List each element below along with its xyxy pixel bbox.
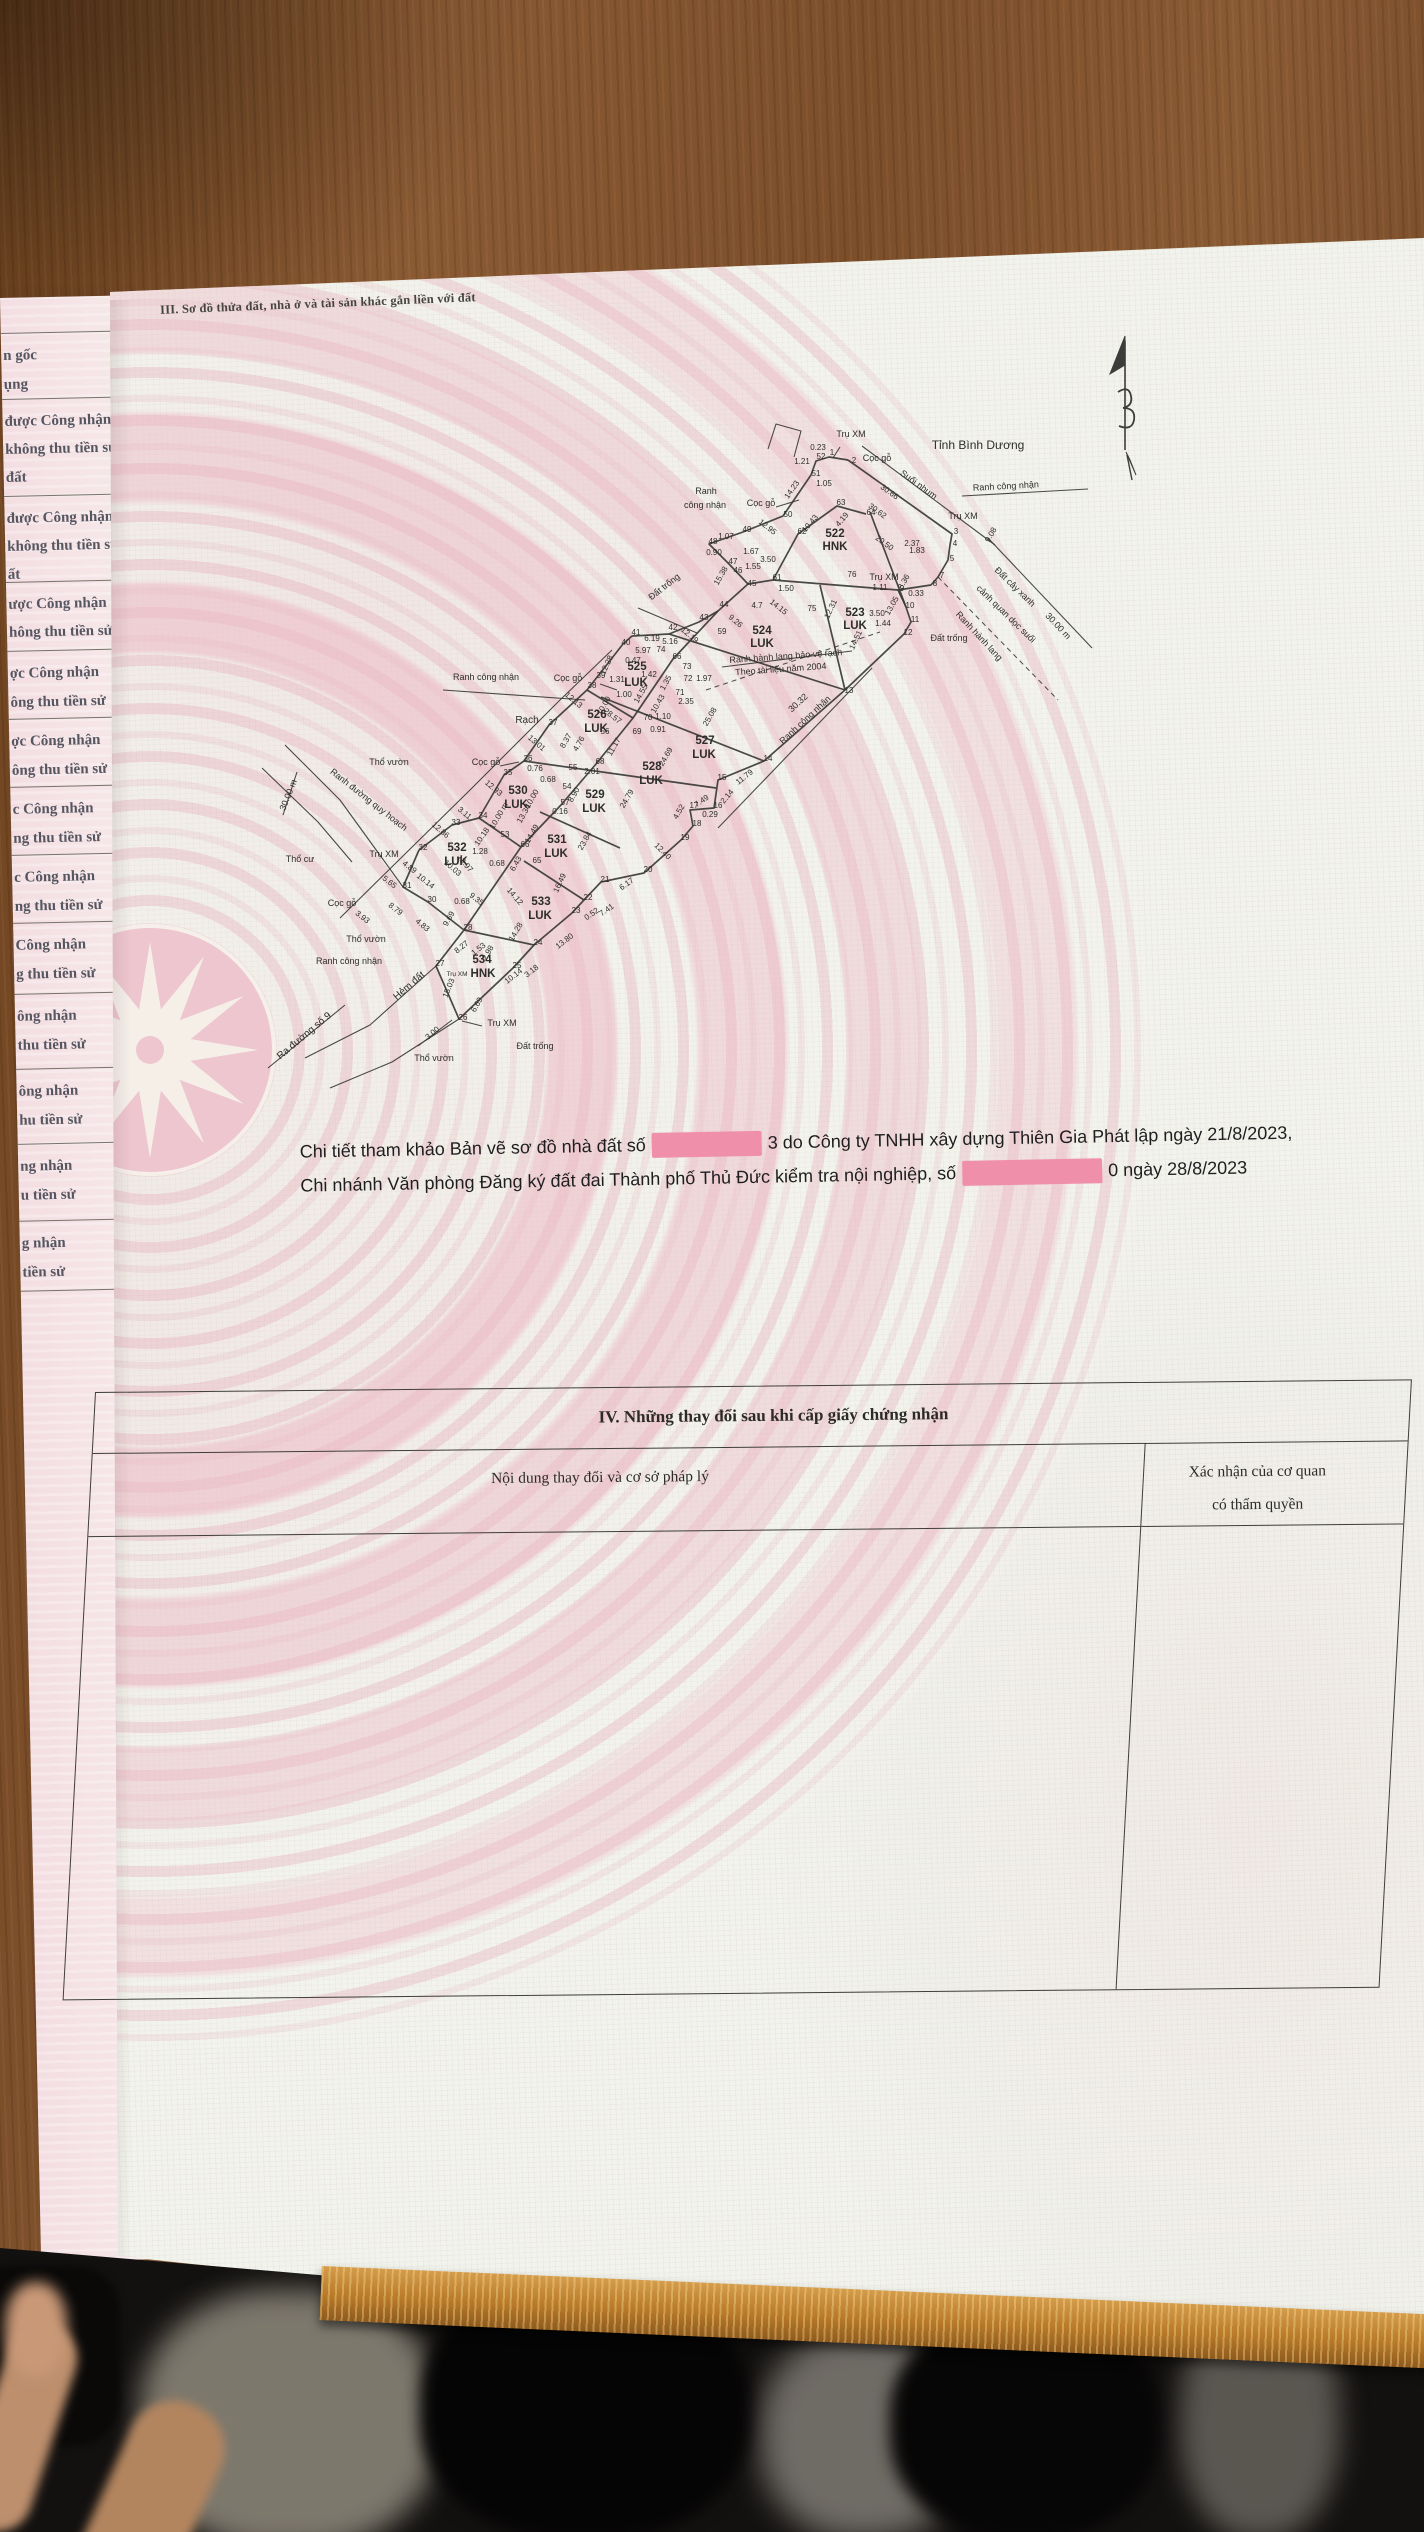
diagram-label: 1.07: [718, 532, 734, 541]
table-column-divider: [1116, 1443, 1146, 1989]
diagram-label: 2: [852, 456, 857, 465]
diagram-label: Cọc gỗ: [554, 673, 583, 683]
diagram-label: 14.28: [507, 920, 525, 942]
diagram-label: Thổ vườn: [414, 1053, 453, 1063]
diagram-label: Cọc gỗ: [747, 498, 776, 508]
cadastral-diagram: Tỉnh Bình DươngTrụ XMCọc gỗSuối nhumRanh…: [0, 0, 1424, 1300]
diagram-label: 0.33: [908, 589, 924, 598]
diagram-label: 56: [601, 727, 610, 736]
diagram-label: 1.31: [609, 675, 625, 684]
diagram-label: 12.86: [430, 820, 452, 840]
finger: [5, 2282, 67, 2377]
diagram-label: 7: [940, 571, 945, 580]
diagram-label: 48: [709, 537, 718, 546]
diagram-label: Trụ XM: [369, 849, 398, 859]
diagram-label: 1.67: [743, 547, 759, 556]
diagram-label: 3.93: [354, 909, 372, 926]
diagram-label: 0.29: [702, 810, 718, 819]
diagram-label: 19: [681, 833, 690, 842]
diagram-label: Cọc gỗ: [472, 757, 501, 767]
diagram-label: 65: [533, 856, 542, 865]
diagram-label: 5: [950, 554, 955, 563]
diagram-label: 3.18: [523, 962, 541, 979]
diagram-line: [464, 930, 534, 945]
table-line-header-sep: [88, 1523, 1403, 1537]
diagram-line: [768, 424, 801, 457]
diagram-label: 6.43: [508, 854, 524, 872]
diagram-label: 49: [743, 525, 752, 534]
diagram-label: 22: [584, 893, 593, 902]
diagram-label: 0.91: [650, 725, 666, 734]
diagram-label: 7.41: [598, 901, 616, 918]
diagram-label: Ranh công nhận: [316, 956, 382, 966]
diagram-label: Trụ XM: [446, 971, 467, 978]
diagram-label: 18: [693, 819, 702, 828]
diagram-label: 3.50: [760, 555, 776, 564]
diagram-label: 1: [830, 448, 835, 457]
diagram-label: 8.79: [387, 901, 405, 918]
diagram-label: 9.69: [441, 909, 457, 927]
diagram-label: LUK: [692, 749, 716, 761]
diagram-label: Cọc gỗ: [863, 453, 892, 463]
diagram-line: [988, 538, 1092, 648]
diagram-label: 53: [501, 830, 510, 839]
diagram-label: 20: [644, 865, 653, 874]
diagram-label: 12.13: [563, 690, 585, 710]
diagram-label: 9.35: [468, 891, 486, 908]
diagram-label: 0.68: [454, 897, 470, 906]
diagram-label: 70: [644, 713, 653, 722]
diagram-label: 0.16: [552, 807, 568, 816]
diagram-label: 524: [752, 625, 772, 637]
section4-col1-header: Nội dung thay đổi và cơ sở pháp lý: [300, 1460, 900, 1496]
diagram-label: 55: [569, 763, 578, 772]
diagram-label: 66: [521, 840, 530, 849]
north-arrow-icon: [1110, 336, 1136, 480]
diagram-label: 527: [695, 735, 714, 747]
diagram-label: 38: [588, 681, 597, 690]
diagram-label: Hẻm đất: [391, 969, 428, 1003]
diagram-label: 14: [764, 754, 773, 763]
diagram-label: 0.23: [810, 443, 826, 452]
diagram-label: 0.68: [540, 775, 556, 784]
diagram-label: 4: [953, 539, 958, 548]
diagram-label: 73: [683, 662, 692, 671]
diagram-label: 26: [459, 1013, 468, 1022]
diagram-label: Trụ XM: [869, 572, 898, 582]
diagram-label: 12.95: [757, 517, 779, 537]
diagram-label: 1.44: [875, 619, 891, 628]
diagram-label: Thổ cư: [286, 854, 315, 864]
diagram-label: 10: [906, 601, 915, 610]
diagram-label: 0.76: [527, 764, 543, 773]
diagram-line: [524, 861, 584, 900]
diagram-label: LUK: [582, 803, 606, 815]
diagram-label: 59: [718, 627, 727, 636]
diagram-label: 12.31: [822, 597, 839, 619]
diagram-label: 531: [547, 834, 567, 846]
diagram-label: 523: [845, 607, 864, 619]
diagram-label: 2.35: [678, 697, 694, 706]
diagram-label: 11.79: [734, 767, 755, 786]
diagram-label: 14.15: [768, 597, 790, 617]
section4-col2-header: Xác nhận của cơ quan có thẩm quyền: [1150, 1454, 1366, 1522]
diagram-label: 7.49: [693, 792, 711, 809]
diagram-label: 6.69: [469, 995, 485, 1013]
diagram-label: 39: [597, 671, 606, 680]
diagram-label: 21: [601, 875, 610, 884]
diagram-label: 522: [825, 528, 844, 540]
diagram-label: 36: [524, 754, 533, 763]
diagram-label: 13.80: [554, 931, 576, 951]
diagram-line: [776, 500, 799, 507]
diagram-label: 25.08: [701, 705, 719, 727]
diagram-label: LUK: [639, 775, 663, 787]
diagram-label: 1.97: [696, 674, 712, 683]
diagram-line: [600, 684, 617, 690]
diagram-label: 42: [669, 623, 678, 632]
table-line-title-sep: [93, 1440, 1408, 1454]
diagram-label: 15.03: [441, 977, 457, 999]
diagram-label: Cọc gỗ: [328, 898, 357, 908]
diagram-label: 64: [867, 508, 876, 517]
diagram-label: 12.40: [653, 841, 674, 862]
diagram-label: 51: [812, 469, 821, 478]
diagram-label: 32: [419, 843, 428, 852]
diagram-label: Trụ XM: [836, 429, 865, 439]
diagram-label: Đất trống: [930, 633, 967, 643]
diagram-label: 62: [798, 527, 807, 536]
diagram-label: 46: [734, 566, 743, 575]
diagram-label: 34: [479, 811, 488, 820]
diagram-label: 76: [848, 570, 857, 579]
diagram-label: 71: [676, 688, 685, 697]
diagram-label: 8: [933, 579, 938, 588]
diagram-label: Tỉnh Bình Dương: [932, 438, 1025, 452]
diagram-label: 75: [808, 604, 817, 613]
diagram-label: công nhận: [684, 500, 726, 510]
diagram-label: 13: [845, 686, 854, 695]
diagram-label: 14.23: [783, 478, 802, 500]
col2-header-line1: Xác nhận của cơ quan: [1150, 1454, 1365, 1489]
diagram-label: 1.05: [816, 479, 832, 488]
diagram-label: 1.21: [794, 457, 810, 466]
diagram-label: 4.52: [671, 802, 687, 820]
diagram-line: [601, 697, 764, 761]
diagram-label: 1.11: [873, 583, 889, 592]
diagram-label: 533: [531, 896, 550, 908]
diagram-label: 5.65: [381, 874, 399, 891]
diagram-label: 57: [561, 798, 570, 807]
caption-line2-tail: 0 ngày 28/8/2023: [1108, 1150, 1248, 1187]
diagram-label: 4.76: [571, 734, 587, 752]
diagram-label: 69: [633, 727, 642, 736]
diagram-label: 61: [773, 573, 782, 582]
diagram-label: 30.66: [879, 482, 901, 501]
diagram-label: Trụ XM: [487, 1018, 516, 1028]
diagram-label: HNK: [823, 541, 849, 553]
diagram-label: 532: [447, 842, 466, 854]
diagram-label: 63: [837, 498, 846, 507]
diagram-label: 1.00: [616, 690, 632, 699]
diagram-label: Ranh công nhận: [453, 672, 519, 682]
diagram-label: 43: [700, 613, 709, 622]
diagram-label: 72: [684, 674, 693, 683]
diagram-label: LUK: [750, 638, 774, 650]
photo-scene: n gốcụngđược Công nhậnkhông thu tiền sửđ…: [0, 0, 1424, 2532]
diagram-label: 30.00 m: [1043, 611, 1072, 642]
diagram-label: Ranh đường quy hoạch: [328, 766, 409, 832]
diagram-label: HNK: [471, 968, 497, 980]
diagram-label: 23: [572, 906, 581, 915]
diagram-label: Ra đường số 9: [274, 1009, 334, 1062]
diagram-label: 0.52: [583, 905, 601, 922]
diagram-label: 530: [508, 785, 527, 797]
diagram-label: 12: [904, 628, 913, 637]
diagram-label: 10.18: [473, 825, 492, 847]
diagram-label: 37: [549, 718, 558, 727]
diagram-label: Trụ XM: [948, 511, 977, 521]
diagram-label: 66: [673, 652, 682, 661]
diagram-label: 6.19: [644, 634, 660, 643]
col2-header-line2: có thẩm quyền: [1150, 1487, 1365, 1522]
diagram-label: 16.49: [551, 871, 568, 893]
diagram-label: 11.17: [605, 736, 623, 758]
diagram-label: 4.19: [834, 510, 851, 528]
diagram-label: 50: [784, 510, 793, 519]
diagram-label: 14.12: [505, 886, 525, 908]
diagram-label: 3.00: [424, 1024, 442, 1041]
diagram-label: 30: [428, 895, 437, 904]
diagram-label: 0.47: [625, 656, 641, 665]
diagram-label: 4.7: [751, 601, 763, 610]
diagram-label: 1.10: [655, 712, 671, 721]
diagram-label: LUK: [528, 910, 552, 922]
diagram-label: 5.97: [635, 646, 651, 655]
diagram-label: 2.01: [584, 767, 600, 776]
diagram-label: 30.00 m: [277, 778, 298, 812]
diagram-label: 24.69: [657, 745, 675, 767]
diagram-label: 0.90: [706, 548, 722, 557]
diagram-label: 52: [817, 452, 826, 461]
diagram-label: 28: [464, 923, 473, 932]
diagram-label: 1.28: [472, 847, 488, 856]
diagram-label: 15.38: [712, 564, 730, 586]
diagram-label: Suối nhum: [898, 468, 939, 501]
diagram-label: 9.26: [727, 613, 745, 630]
diagram-label: 1.50: [778, 584, 794, 593]
diagram-label: 24.79: [618, 787, 636, 809]
diagram-label: Đất trống: [646, 571, 681, 602]
diagram-label: Ranh công nhận: [973, 479, 1039, 492]
diagram-label: 74: [657, 645, 666, 654]
diagram-label: 35: [504, 768, 513, 777]
redaction-box-1: [651, 1130, 761, 1157]
diagram-label: 33: [452, 818, 461, 827]
diagram-label: 0.68: [489, 859, 505, 868]
diagram-label: 15: [718, 773, 727, 782]
diagram-label: Thổ vườn: [369, 757, 408, 767]
diagram-label: 23.84: [576, 829, 594, 851]
diagram-label: 4.83: [414, 917, 432, 934]
diagram-label: Đất trống: [516, 1041, 553, 1051]
diagram-label: 1.42: [641, 670, 657, 679]
diagram-label: 40: [622, 638, 631, 647]
diagram-label: 41: [632, 628, 641, 637]
diagram-label: 1.55: [745, 562, 761, 571]
diagram-label: 9.08: [983, 525, 999, 543]
diagram-label: 31: [403, 881, 412, 890]
diagram-label: 2.14: [719, 787, 736, 805]
diagram-label: 44: [720, 600, 729, 609]
diagram-label: 24: [534, 938, 543, 947]
diagram-label: 13.05: [883, 594, 901, 616]
diagram-label: 68: [596, 757, 605, 766]
diagram-label: Rạch: [515, 715, 538, 726]
diagram-label: 45: [748, 579, 757, 588]
diagram-label: 10.00 m: [488, 801, 510, 831]
diagram-line: [500, 762, 519, 766]
redaction-box-2: [962, 1158, 1102, 1186]
diagram-label: 11: [911, 615, 920, 624]
diagram-label: 27: [436, 959, 445, 968]
diagram-label: 13.01: [526, 733, 548, 753]
diagram-label: 10.14: [415, 871, 437, 891]
diagram-label: LUK: [544, 848, 568, 860]
diagram-label: 47: [729, 557, 738, 566]
diagram-label: Ranh: [695, 486, 717, 496]
diagram-label: 3: [954, 527, 959, 536]
diagram-label: Thổ vườn: [346, 934, 385, 944]
diagram-label: 1.83: [909, 546, 925, 555]
diagram-label: 529: [585, 789, 604, 801]
